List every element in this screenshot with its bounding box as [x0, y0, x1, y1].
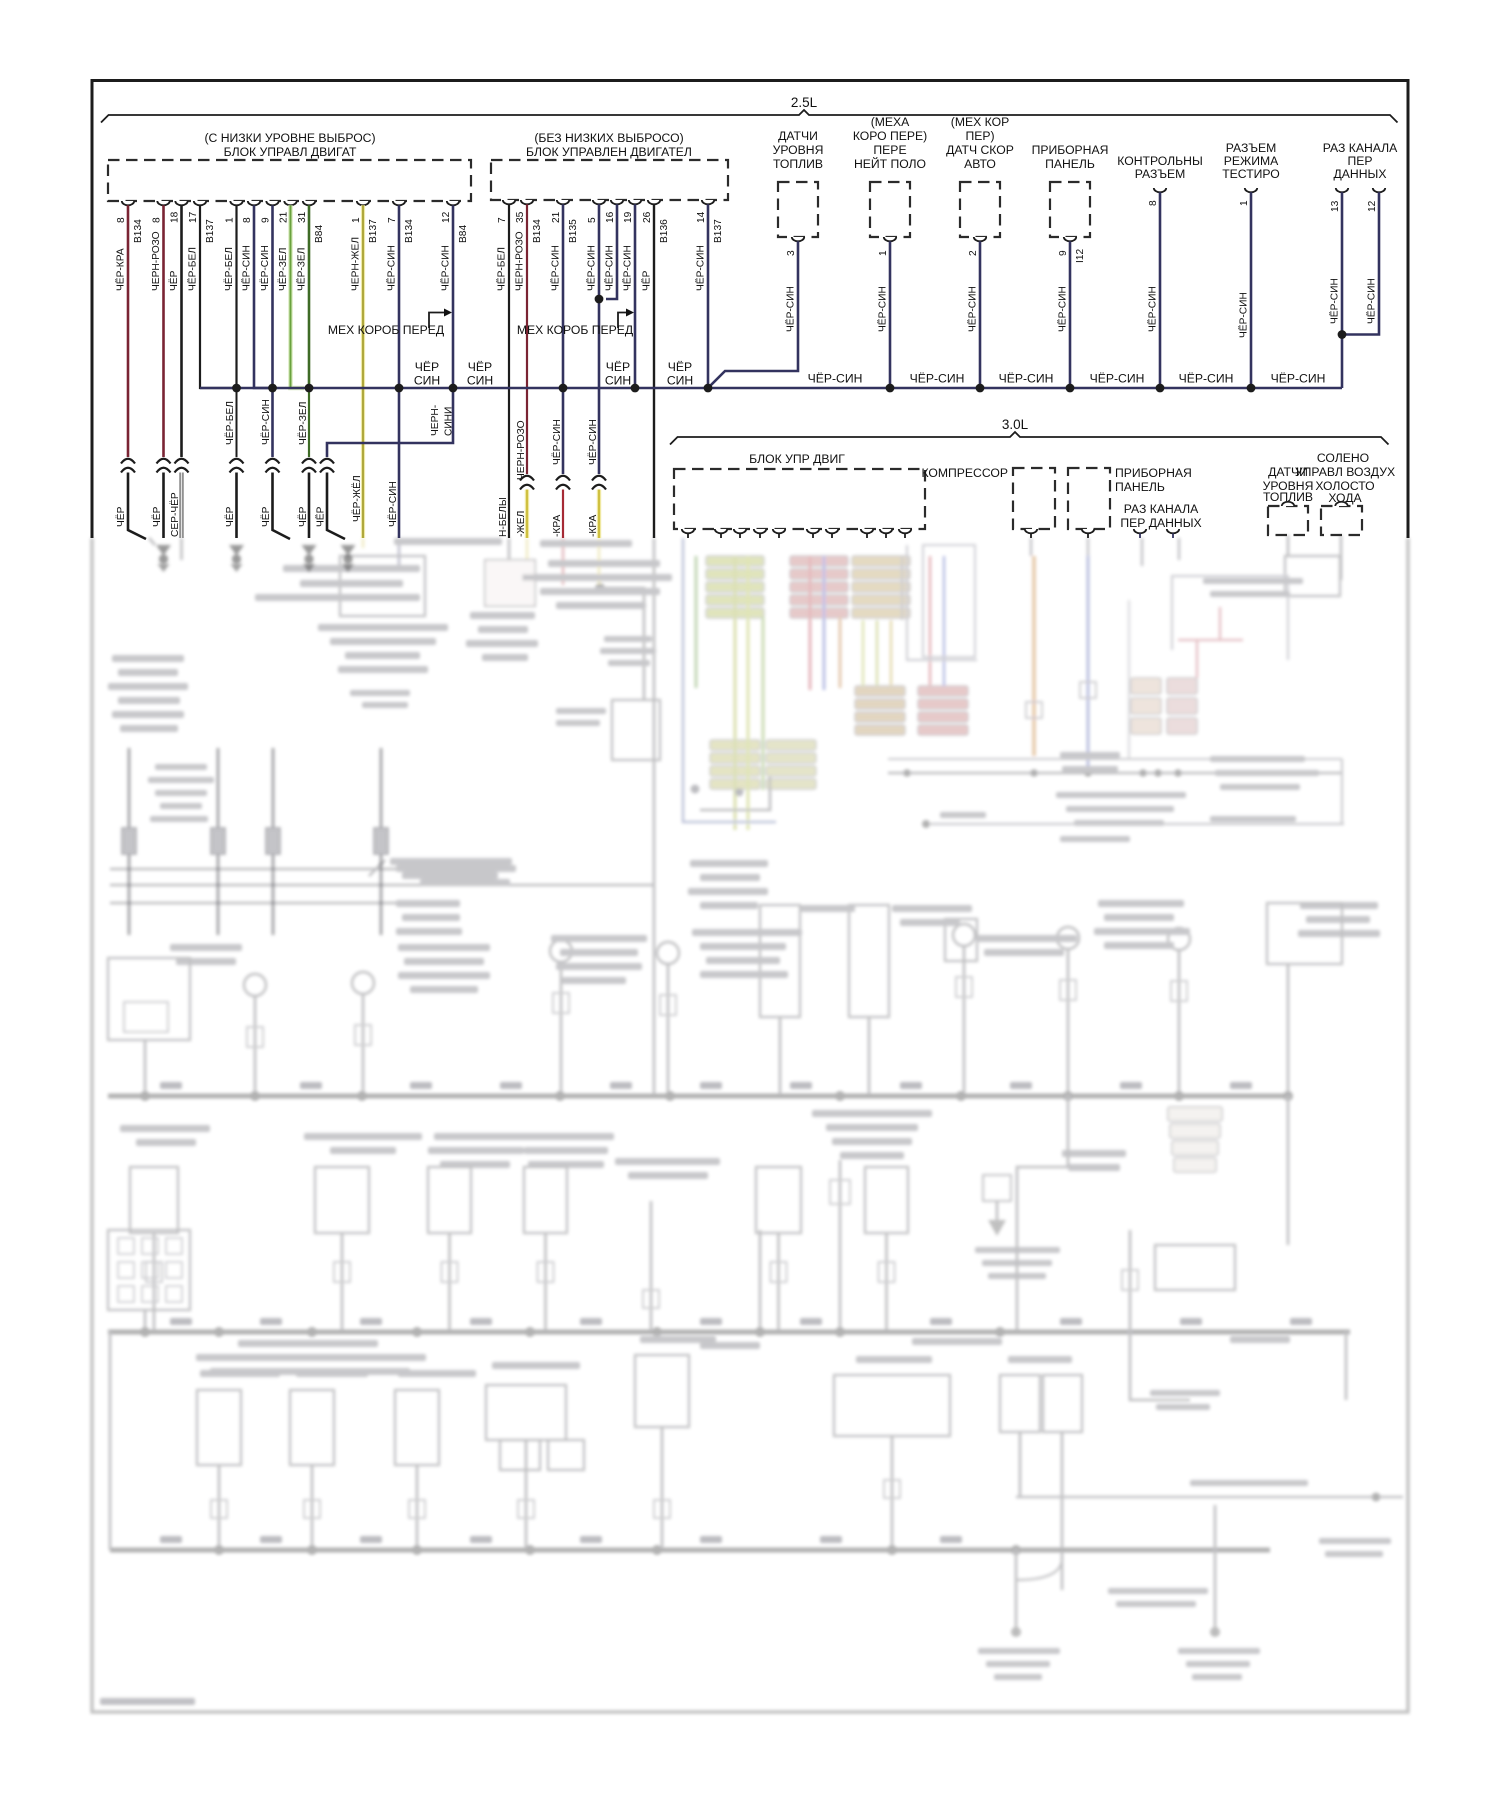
- svg-text:ЧЕРН-ЖЕЛ: ЧЕРН-ЖЕЛ: [351, 237, 362, 291]
- svg-text:ЧЁР: ЧЁР: [260, 506, 272, 527]
- svg-text:ЧЁР-СИН: ЧЁР-СИН: [550, 245, 562, 291]
- svg-text:26: 26: [642, 211, 653, 223]
- svg-text:B84: B84: [458, 225, 469, 243]
- svg-text:16: 16: [605, 211, 616, 223]
- svg-text:ПЕР): ПЕР): [965, 129, 994, 143]
- svg-text:АВТО: АВТО: [964, 157, 996, 171]
- svg-text:ЧЁР-СИН: ЧЁР-СИН: [999, 372, 1054, 386]
- svg-text:УРОВНЯ: УРОВНЯ: [773, 143, 824, 157]
- svg-text:ЧЁР: ЧЁР: [468, 360, 492, 374]
- svg-text:8: 8: [116, 217, 127, 223]
- svg-text:12: 12: [1367, 200, 1378, 212]
- svg-text:УПРАВЛ ВОЗДУХ: УПРАВЛ ВОЗДУХ: [1295, 465, 1395, 479]
- svg-text:ДАТЧИ: ДАТЧИ: [778, 129, 818, 143]
- svg-text:СЕР-ЧЁР: СЕР-ЧЁР: [169, 492, 181, 537]
- svg-text:СИН: СИН: [467, 374, 493, 388]
- svg-text:31: 31: [297, 211, 308, 223]
- svg-text:Н-БЕЛЫ: Н-БЕЛЫ: [498, 497, 509, 537]
- svg-text:КОНТРОЛЬНЫ: КОНТРОЛЬНЫ: [1117, 154, 1202, 168]
- svg-text:ЧЁР-ЗЕЛ: ЧЁР-ЗЕЛ: [297, 402, 309, 445]
- svg-text:1: 1: [878, 250, 889, 256]
- svg-text:ПЕР ДАННЫХ: ПЕР ДАННЫХ: [1120, 516, 1201, 530]
- svg-text:B84: B84: [314, 225, 325, 243]
- svg-text:ПРИБОРНАЯ: ПРИБОРНАЯ: [1032, 143, 1109, 157]
- svg-text:3.0L: 3.0L: [1002, 417, 1029, 432]
- svg-text:ЧЁР-СИН: ЧЁР-СИН: [695, 245, 707, 291]
- svg-text:ЧЕРН-РОЗО: ЧЕРН-РОЗО: [515, 231, 526, 291]
- svg-text:ЧЁР-БЕЛ: ЧЁР-БЕЛ: [496, 247, 508, 291]
- svg-text:РАЗЪЕМ: РАЗЪЕМ: [1226, 141, 1277, 155]
- svg-text:ТОПЛИВ: ТОПЛИВ: [773, 157, 823, 171]
- svg-text:ЧЁР-СИН: ЧЁР-СИН: [440, 245, 452, 291]
- svg-text:ЧЁР-СИН: ЧЁР-СИН: [808, 372, 863, 386]
- svg-text:2: 2: [968, 250, 979, 256]
- svg-text:КОРО ПЕРЕ): КОРО ПЕРЕ): [853, 129, 927, 143]
- svg-text:7: 7: [497, 217, 508, 223]
- svg-text:ЧЁР-СИН: ЧЁР-СИН: [587, 419, 599, 465]
- svg-text:-ЖЕЛ: -ЖЕЛ: [516, 511, 527, 537]
- svg-text:РАЗ КАНАЛА: РАЗ КАНАЛА: [1323, 141, 1398, 155]
- svg-text:2.5L: 2.5L: [791, 95, 818, 110]
- svg-text:БЛОК УПР ДВИГ: БЛОК УПР ДВИГ: [749, 452, 845, 466]
- svg-text:35: 35: [515, 211, 526, 223]
- svg-text:B134: B134: [133, 219, 144, 243]
- svg-text:ЧЁР-СИН: ЧЁР-СИН: [586, 245, 598, 291]
- svg-text:ЧЁР: ЧЁР: [415, 360, 439, 374]
- svg-text:ЧЁР-СИН: ЧЁР-СИН: [387, 481, 399, 527]
- svg-text:B137: B137: [205, 219, 216, 243]
- svg-text:ЧЁР-СИН: ЧЁР-СИН: [622, 245, 634, 291]
- svg-text:18: 18: [170, 211, 181, 223]
- svg-text:19: 19: [623, 211, 634, 223]
- svg-text:ЧЁР-СИН: ЧЁР-СИН: [1329, 278, 1341, 324]
- svg-text:B137: B137: [713, 219, 724, 243]
- svg-text:13: 13: [1330, 200, 1341, 212]
- svg-text:СИНИ: СИНИ: [444, 407, 455, 436]
- svg-text:ЧЁР-КРА: ЧЁР-КРА: [115, 248, 127, 291]
- svg-text:(МЕХ КОР: (МЕХ КОР: [951, 115, 1009, 129]
- svg-text:ПРИБОРНАЯ: ПРИБОРНАЯ: [1115, 466, 1192, 480]
- svg-text:21: 21: [279, 211, 290, 223]
- svg-text:3: 3: [786, 250, 797, 256]
- svg-text:9: 9: [1058, 250, 1069, 256]
- svg-text:8: 8: [242, 217, 253, 223]
- svg-text:8: 8: [152, 217, 163, 223]
- svg-text:СИН: СИН: [414, 374, 440, 388]
- svg-text:ЧЁР-СИН: ЧЁР-СИН: [785, 286, 797, 332]
- svg-text:СИН: СИН: [605, 374, 631, 388]
- svg-text:ЧЁР: ЧЁР: [641, 270, 653, 291]
- svg-text:21: 21: [551, 211, 562, 223]
- svg-text:ЧЕРН-: ЧЕРН-: [430, 405, 441, 436]
- svg-text:ЧЁР: ЧЁР: [606, 360, 630, 374]
- svg-text:ЧЁР-СИН: ЧЁР-СИН: [386, 245, 398, 291]
- svg-text:ДАННЫХ: ДАННЫХ: [1334, 167, 1387, 181]
- svg-text:ЧЁР-ЗЕЛ: ЧЁР-ЗЕЛ: [296, 248, 308, 291]
- svg-text:ЧЁР-СИН: ЧЁР-СИН: [604, 245, 616, 291]
- svg-text:14: 14: [696, 211, 707, 223]
- svg-text:1: 1: [1239, 200, 1250, 206]
- svg-text:ЧЁР-СИН: ЧЁР-СИН: [551, 419, 563, 465]
- svg-text:(С НИЗКИ УРОВНЕ ВЫБРОС): (С НИЗКИ УРОВНЕ ВЫБРОС): [204, 131, 375, 145]
- svg-text:ПЕРЕ: ПЕРЕ: [873, 143, 906, 157]
- svg-text:ЧЁР: ЧЁР: [224, 506, 236, 527]
- svg-text:ЧЁР: ЧЁР: [115, 506, 127, 527]
- svg-text:ЧЁР-СИН: ЧЁР-СИН: [1366, 278, 1378, 324]
- svg-text:(МЕХА: (МЕХА: [871, 115, 910, 129]
- svg-text:НЕЙТ ПОЛО: НЕЙТ ПОЛО: [854, 156, 926, 171]
- svg-text:ПАНЕЛЬ: ПАНЕЛЬ: [1045, 157, 1095, 171]
- svg-text:ЧЁР: ЧЁР: [315, 506, 327, 527]
- svg-text:ЧЁР-СИН: ЧЁР-СИН: [1238, 292, 1250, 338]
- svg-text:СОЛЕНО: СОЛЕНО: [1317, 451, 1369, 465]
- svg-text:РАЗЪЕМ: РАЗЪЕМ: [1135, 167, 1186, 181]
- svg-text:ЧЁР-СИН: ЧЁР-СИН: [260, 399, 272, 445]
- svg-text:B134: B134: [532, 219, 543, 243]
- svg-text:7: 7: [387, 217, 398, 223]
- svg-text:ЧЁР-БЕЛ: ЧЁР-БЕЛ: [224, 401, 236, 445]
- svg-text:ЧЁР: ЧЁР: [297, 506, 309, 527]
- svg-text:12: 12: [441, 211, 452, 223]
- svg-text:ЧЁР: ЧЁР: [151, 506, 163, 527]
- svg-text:КОМПРЕССОР: КОМПРЕССОР: [921, 466, 1008, 480]
- svg-text:-КРА: -КРА: [588, 515, 599, 537]
- svg-text:РАЗ КАНАЛА: РАЗ КАНАЛА: [1124, 502, 1199, 516]
- svg-text:ЧЁР-ЖЁЛ: ЧЁР-ЖЁЛ: [351, 475, 363, 522]
- svg-text:РЕЖИМА: РЕЖИМА: [1224, 154, 1279, 168]
- svg-text:ДАТЧ СКОР: ДАТЧ СКОР: [946, 143, 1014, 157]
- svg-text:ЧЁР-СИН: ЧЁР-СИН: [259, 245, 271, 291]
- svg-text:17: 17: [188, 211, 199, 223]
- svg-text:ЧЁР-БЕЛ: ЧЁР-БЕЛ: [187, 247, 199, 291]
- svg-text:ЧЁР-ЗЕЛ: ЧЁР-ЗЕЛ: [277, 248, 289, 291]
- svg-text:ЧЁР-СИН: ЧЁР-СИН: [1147, 286, 1159, 332]
- svg-text:МЕХ КОРОБ ПЕРЕД: МЕХ КОРОБ ПЕРЕД: [517, 323, 634, 337]
- svg-text:ПЕР: ПЕР: [1347, 154, 1372, 168]
- svg-text:5: 5: [587, 217, 598, 223]
- svg-text:9: 9: [261, 217, 272, 223]
- svg-text:ЧЁР-БЕЛ: ЧЁР-БЕЛ: [223, 247, 235, 291]
- svg-text:БЛОК УПРАВЛЕН ДВИГАТЕЛ: БЛОК УПРАВЛЕН ДВИГАТЕЛ: [526, 145, 692, 159]
- svg-text:ЧЁР-СИН: ЧЁР-СИН: [910, 372, 965, 386]
- svg-text:1: 1: [225, 217, 236, 223]
- svg-text:B134: B134: [404, 219, 415, 243]
- svg-text:B137: B137: [368, 219, 379, 243]
- svg-text:I12: I12: [1075, 249, 1086, 263]
- svg-text:МЕХ КОРОБ ПЕРЕД: МЕХ КОРОБ ПЕРЕД: [328, 323, 445, 337]
- svg-text:-КРА: -КРА: [552, 515, 563, 537]
- svg-text:ЧЁР-СИН: ЧЁР-СИН: [1179, 372, 1234, 386]
- svg-text:1: 1: [351, 217, 362, 223]
- svg-text:B135: B135: [568, 219, 579, 243]
- svg-text:ЧЁР: ЧЁР: [668, 360, 692, 374]
- svg-text:ЧЁР-СИН: ЧЁР-СИН: [1057, 286, 1069, 332]
- svg-text:ЧЕРН-РОЗО: ЧЕРН-РОЗО: [516, 420, 527, 480]
- svg-text:B136: B136: [659, 219, 670, 243]
- svg-text:СИН: СИН: [667, 374, 693, 388]
- svg-text:ЧЁР-СИН: ЧЁР-СИН: [877, 286, 889, 332]
- svg-text:8: 8: [1148, 200, 1159, 206]
- svg-text:ЧЁР-СИН: ЧЁР-СИН: [1271, 372, 1326, 386]
- svg-text:ЧЁР-СИН: ЧЁР-СИН: [967, 286, 979, 332]
- svg-text:БЛОК УПРАВЛ ДВИГАТ: БЛОК УПРАВЛ ДВИГАТ: [224, 145, 357, 159]
- svg-text:ТЕСТИРО: ТЕСТИРО: [1222, 167, 1280, 181]
- svg-text:ЧЁР-СИН: ЧЁР-СИН: [241, 245, 253, 291]
- svg-text:ПАНЕЛЬ: ПАНЕЛЬ: [1115, 480, 1165, 494]
- svg-text:ЧЁР: ЧЁР: [168, 270, 180, 291]
- svg-text:(БЕЗ НИЗКИХ ВЫБРОСО): (БЕЗ НИЗКИХ ВЫБРОСО): [534, 131, 683, 145]
- svg-text:ЧЕРН-РОЗО: ЧЕРН-РОЗО: [151, 231, 162, 291]
- svg-text:ЧЁР-СИН: ЧЁР-СИН: [1090, 372, 1145, 386]
